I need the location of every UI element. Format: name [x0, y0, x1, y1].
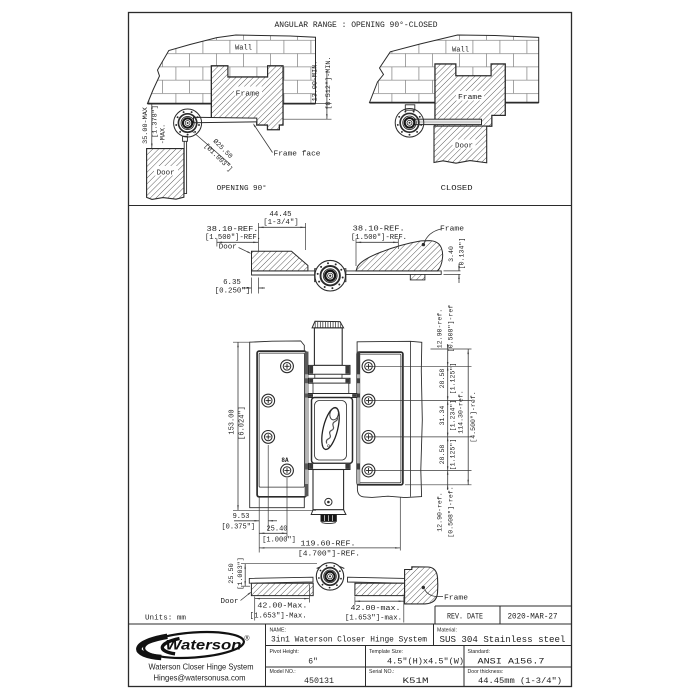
svg-text:[1.234"]: [1.234"] [450, 400, 457, 432]
svg-text:[0.512"]-MIN.: [0.512"]-MIN. [325, 56, 333, 109]
svg-text:[1.000"]: [1.000"] [262, 536, 296, 544]
svg-text:42.00-max.: 42.00-max. [351, 605, 401, 613]
svg-text:[6.024"]: [6.024"] [238, 406, 246, 440]
svg-text:-MAX.: -MAX. [159, 124, 167, 144]
svg-text:450131: 450131 [304, 677, 334, 686]
svg-text:Frame: Frame [444, 595, 468, 603]
svg-text:153.00: 153.00 [229, 409, 237, 434]
svg-text:28.58: 28.58 [439, 445, 446, 465]
svg-text:®: ® [244, 635, 250, 643]
svg-text:Model NO.:: Model NO.: [270, 669, 296, 675]
svg-text:Serial NO.:: Serial NO.: [369, 669, 394, 675]
svg-text:Material:: Material: [437, 628, 457, 634]
svg-text:[1.653"]-max.: [1.653"]-max. [345, 615, 402, 623]
svg-text:Hinges@watersonusa.com: Hinges@watersonusa.com [154, 673, 246, 683]
svg-text:[4.700"]-REF.: [4.700"]-REF. [298, 550, 360, 558]
svg-text:3in1 Waterson Closer Hinge Sys: 3in1 Waterson Closer Hinge System [271, 636, 427, 645]
svg-text:[4.500"]-ref.: [4.500"]-ref. [470, 391, 477, 442]
svg-text:12.90-ref.: 12.90-ref. [436, 492, 443, 532]
svg-text:[0.134"]: [0.134"] [458, 238, 465, 270]
svg-text:38.10-REF.: 38.10-REF. [207, 226, 259, 234]
svg-text:44.45: 44.45 [269, 211, 291, 219]
svg-text:8A: 8A [281, 457, 289, 464]
svg-text:REV. DATE: REV. DATE [447, 613, 483, 622]
svg-text:Frame: Frame [458, 94, 482, 102]
svg-text:6.35: 6.35 [223, 279, 241, 287]
svg-text:[1.125"]: [1.125"] [450, 439, 457, 471]
svg-text:4.5"(H)x4.5"(W): 4.5"(H)x4.5"(W) [387, 658, 464, 667]
svg-text:13.00-MIN.: 13.00-MIN. [312, 61, 320, 102]
svg-text:Door: Door [157, 169, 175, 177]
svg-text:Pivot Height:: Pivot Height: [270, 649, 299, 655]
svg-text:Door: Door [219, 244, 237, 252]
svg-text:42.00-Max.: 42.00-Max. [257, 602, 307, 610]
svg-text:[1.003"]: [1.003"] [237, 557, 245, 590]
svg-text:Waterson Closer Hinge System: Waterson Closer Hinge System [149, 662, 254, 672]
svg-text:31.34: 31.34 [439, 406, 446, 426]
svg-text:119.60-REF.: 119.60-REF. [301, 541, 356, 549]
svg-text:[1-3/4"]: [1-3/4"] [263, 219, 298, 227]
svg-text:Units: mm: Units: mm [145, 615, 186, 623]
svg-text:[1.125"]: [1.125"] [450, 363, 457, 395]
svg-text:SUS 304 Stainless steel: SUS 304 Stainless steel [440, 635, 566, 645]
svg-text:Waterson: Waterson [166, 637, 242, 653]
svg-text:Frame face: Frame face [274, 151, 321, 159]
svg-text:9.53: 9.53 [233, 513, 250, 521]
svg-text:Door: Door [455, 143, 473, 151]
svg-text:NAME:: NAME: [270, 628, 286, 634]
svg-text:ANSI A156.7: ANSI A156.7 [478, 657, 545, 667]
svg-text:Standard:: Standard: [468, 649, 491, 655]
svg-text:Frame: Frame [440, 226, 464, 234]
svg-text:[0.375"]: [0.375"] [221, 523, 255, 531]
svg-text:3.40: 3.40 [448, 246, 455, 262]
svg-text:12.90-ref.: 12.90-ref. [436, 309, 443, 349]
svg-text:Template Size:: Template Size: [369, 649, 403, 655]
svg-text:[0.508"]-ref: [0.508"]-ref [448, 305, 455, 353]
svg-text:38.10-REF.: 38.10-REF. [353, 225, 405, 233]
svg-text:44.45mm (1-3/4"): 44.45mm (1-3/4") [478, 677, 562, 686]
svg-text:K51M: K51M [403, 677, 429, 686]
svg-text:[1.653"]-Max.: [1.653"]-Max. [250, 612, 307, 620]
svg-text:Door: Door [221, 598, 239, 606]
svg-text:6": 6" [308, 658, 318, 667]
svg-text:ANGULAR RANGE : OPENING 90°-CL: ANGULAR RANGE : OPENING 90°-CLOSED [275, 21, 438, 30]
svg-text:Door thickness:: Door thickness: [468, 669, 504, 675]
svg-text:2020-MAR-27: 2020-MAR-27 [508, 613, 558, 622]
svg-text:Wall: Wall [235, 45, 252, 53]
svg-text:Wall: Wall [452, 47, 469, 55]
svg-text:28.58: 28.58 [439, 369, 446, 389]
svg-text:25.50: 25.50 [228, 563, 236, 583]
svg-text:OPENING 90°: OPENING 90° [217, 184, 267, 193]
svg-text:[1.500"]-REF.: [1.500"]-REF. [205, 234, 261, 242]
svg-text:[0.508"]-ref.: [0.508"]-ref. [448, 486, 455, 537]
svg-text:[0.250"]: [0.250"] [215, 288, 250, 296]
svg-text:25.40: 25.40 [266, 525, 287, 533]
svg-text:Frame: Frame [236, 91, 260, 99]
svg-text:114.30-ref.: 114.30-ref. [458, 390, 465, 434]
svg-text:CLOSED: CLOSED [441, 185, 474, 193]
svg-text:35.00-MAX: 35.00-MAX [142, 107, 150, 144]
